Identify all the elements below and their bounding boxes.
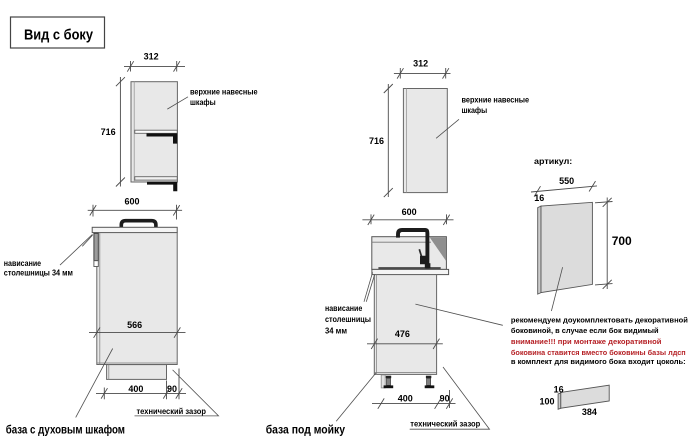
svg-text:нависание: нависание [325,304,363,313]
svg-text:технический зазор: технический зазор [410,419,480,428]
svg-text:база с духовым шкафом: база с духовым шкафом [6,425,125,437]
svg-text:боковина ставится вместо боков: боковина ставится вместо боковины базы л… [511,348,686,357]
svg-text:312: 312 [413,58,428,68]
svg-text:внимание!!! при монтаже декора: внимание!!! при монтаже декоративной [511,337,662,346]
svg-text:Вид с боку: Вид с боку [24,27,94,44]
svg-text:90: 90 [440,394,450,404]
svg-text:400: 400 [398,394,413,404]
svg-text:312: 312 [144,51,159,61]
svg-text:столешницы: столешницы [325,315,371,324]
svg-text:716: 716 [101,127,116,137]
svg-text:600: 600 [124,197,139,207]
svg-text:нависание: нависание [4,259,42,268]
svg-text:шкафы: шкафы [190,98,216,107]
svg-text:34 мм: 34 мм [325,326,347,335]
svg-text:716: 716 [369,136,384,146]
svg-text:100: 100 [539,396,554,406]
svg-text:столешницы 34 мм: столешницы 34 мм [4,268,73,277]
svg-text:550: 550 [559,176,574,186]
svg-text:верхние навесные: верхние навесные [462,96,530,105]
svg-text:400: 400 [128,384,143,394]
svg-text:600: 600 [402,207,417,217]
svg-text:артикул:: артикул: [534,156,572,166]
svg-text:384: 384 [582,407,597,417]
svg-text:16: 16 [534,193,544,203]
svg-text:база под мойку: база под мойку [266,425,346,437]
svg-text:700: 700 [612,234,632,248]
svg-text:технический зазор: технический зазор [137,407,207,416]
svg-text:476: 476 [395,329,410,339]
svg-text:шкафы: шкафы [462,106,488,115]
svg-text:рекомендуем доукомплектовать д: рекомендуем доукомплектовать декоративно… [511,316,688,325]
svg-text:90: 90 [167,384,177,394]
svg-text:566: 566 [127,320,142,330]
svg-text:верхние навесные: верхние навесные [190,88,258,97]
svg-text:в комплект для видимого бока в: в комплект для видимого бока входит цоко… [511,357,686,366]
svg-text:16: 16 [554,384,564,394]
svg-text:боковиной, в случае если бок в: боковиной, в случае если бок видимый [511,326,659,335]
